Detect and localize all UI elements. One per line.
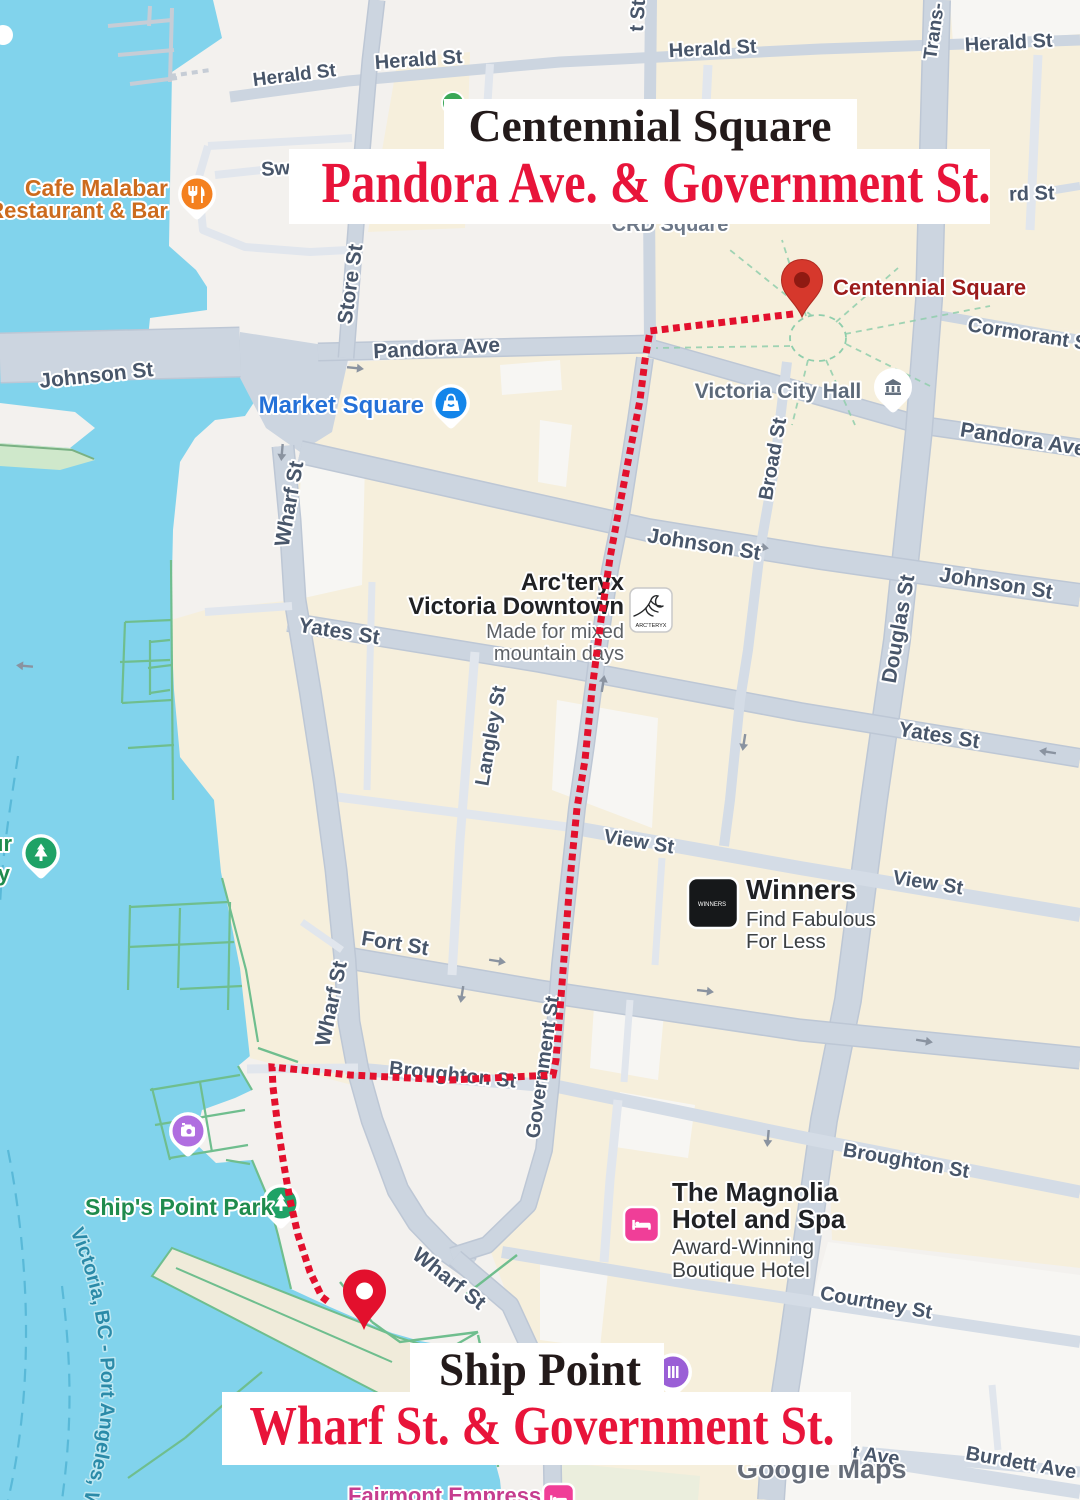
svg-text:Hotel and Spa: Hotel and Spa <box>672 1204 846 1234</box>
svg-text:Fairmont Empress: Fairmont Empress <box>348 1483 541 1500</box>
svg-text:Herald St: Herald St <box>964 30 1053 57</box>
svg-text:Market Square: Market Square <box>259 392 424 419</box>
svg-text:Centennial Square: Centennial Square <box>833 275 1026 300</box>
svg-text:Pandora Ave. & Government St.: Pandora Ave. & Government St. <box>322 150 991 215</box>
svg-text:y: y <box>0 861 11 886</box>
svg-text:ur: ur <box>0 831 12 856</box>
svg-text:rd St: rd St <box>1009 182 1056 206</box>
svg-text:Centennial Square: Centennial Square <box>469 101 832 151</box>
svg-text:Winners: Winners <box>746 874 856 905</box>
svg-text:Find Fabulous: Find Fabulous <box>746 908 876 931</box>
svg-text:Victoria City Hall: Victoria City Hall <box>695 380 862 403</box>
svg-text:Sw: Sw <box>260 157 291 181</box>
svg-text:mountain days: mountain days <box>494 643 624 665</box>
svg-text:Ship Point: Ship Point <box>439 1344 641 1396</box>
svg-text:Restaurant & Bar: Restaurant & Bar <box>0 198 168 223</box>
svg-text:t St: t St <box>626 0 650 32</box>
svg-text:Ship's Point Park: Ship's Point Park <box>85 1194 273 1220</box>
svg-text:Herald St: Herald St <box>668 36 757 63</box>
svg-text:Wharf St. & Government St.: Wharf St. & Government St. <box>250 1395 835 1456</box>
svg-text:Boutique Hotel: Boutique Hotel <box>672 1259 810 1282</box>
svg-text:For Less: For Less <box>746 930 826 953</box>
svg-text:The Magnolia: The Magnolia <box>672 1177 839 1207</box>
svg-text:Award-Winning: Award-Winning <box>672 1236 814 1259</box>
svg-text:ARC'TERYX: ARC'TERYX <box>636 623 667 629</box>
svg-text:Made for mixed: Made for mixed <box>486 621 624 643</box>
svg-text:Victoria Downtown: Victoria Downtown <box>408 593 624 620</box>
svg-text:WINNERS: WINNERS <box>698 902 726 908</box>
